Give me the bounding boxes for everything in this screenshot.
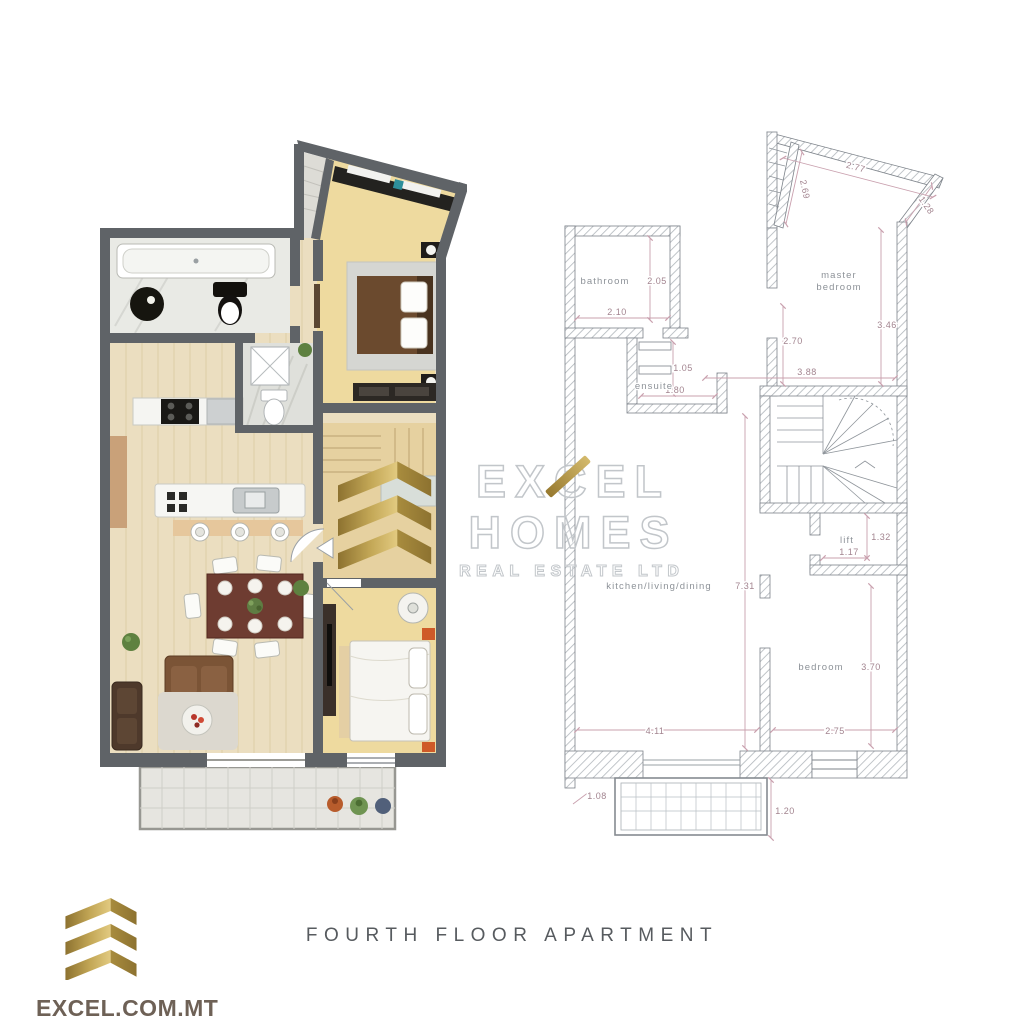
dim-top-angled: 2.69: [798, 179, 812, 200]
dim-balcony-l: 1.08: [587, 791, 607, 801]
plant: [122, 633, 140, 651]
technical-floor-plan: 2.77 1.28 2.69 2.05 2.10 2.70 3.46 3.88 …: [555, 128, 955, 852]
stove: [161, 399, 199, 424]
brand-block: EXCEL.COM.MT: [36, 898, 218, 1022]
dim-lift-h: 1.32: [871, 532, 891, 542]
dim-master-h: 3.46: [877, 320, 897, 330]
dim-bathroom-w: 2.10: [607, 307, 627, 317]
stools: [191, 523, 289, 541]
floorplan-page: 2.77 1.28 2.69 2.05 2.10 2.70 3.46 3.88 …: [0, 0, 1024, 1024]
label-master-2: bedroom: [816, 282, 861, 293]
website-text: EXCEL.COM.MT: [36, 995, 218, 1022]
label-bathroom: bathroom: [581, 276, 630, 287]
dim-lift-w: 1.17: [839, 547, 859, 557]
label-lift: lift: [840, 535, 854, 546]
dim-living-w: 4.11: [646, 726, 665, 736]
rendered-floor-plan: [95, 136, 467, 836]
coffee-table: [182, 705, 212, 735]
label-ensuite: ensuite: [635, 381, 673, 392]
label-master-1: master: [821, 270, 857, 281]
lamp: [422, 742, 435, 752]
second-bedroom: [323, 588, 436, 753]
dim-bedroom-w: 2.75: [825, 726, 845, 736]
label-bedroom: bedroom: [798, 662, 843, 673]
balcony: [140, 767, 395, 829]
dim-bedroom-h: 3.70: [861, 662, 881, 672]
bathroom: [110, 238, 290, 333]
pantry-cabinet: [110, 436, 127, 528]
balcony: [615, 778, 767, 835]
walls: [565, 132, 943, 788]
dimension-lines: [573, 152, 933, 838]
planter-pot: [375, 798, 391, 814]
dim-balcony-r: 1.20: [775, 806, 795, 816]
stairs: [317, 423, 436, 578]
dim-master-inner-h: 2.70: [783, 336, 803, 346]
dim-bathroom-h: 2.05: [647, 276, 667, 286]
dim-master-w: 3.88: [797, 367, 817, 377]
bed: [350, 641, 430, 741]
dim-living-h: 7.31: [735, 581, 755, 591]
basin: [130, 287, 164, 321]
label-kitchen: kitchen/living/dining: [606, 581, 711, 592]
dim-ensuite-h: 1.05: [673, 363, 693, 373]
plant: [298, 343, 312, 357]
island: [155, 484, 305, 517]
lamp: [422, 628, 435, 640]
plant: [293, 580, 309, 596]
page-title: FOURTH FLOOR APARTMENT: [0, 925, 1024, 947]
